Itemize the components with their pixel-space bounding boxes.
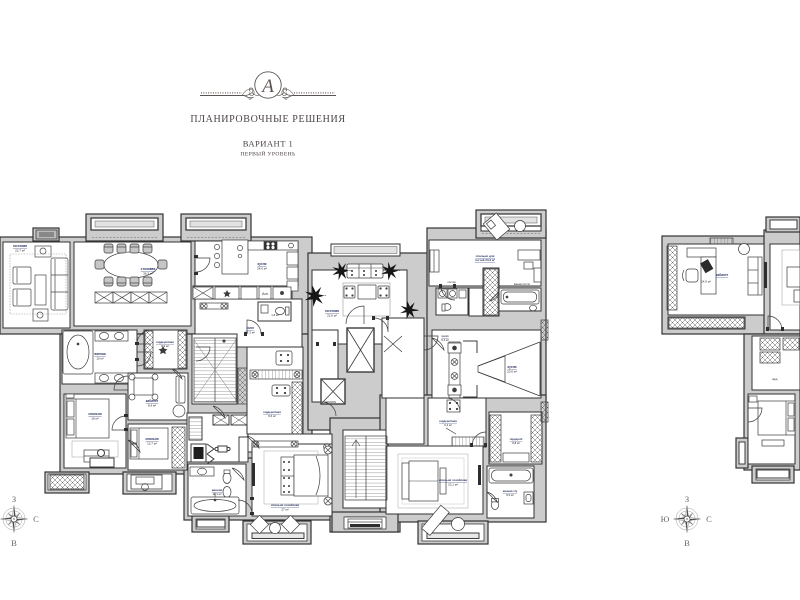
svg-text:В: В	[11, 538, 17, 548]
svg-text:12,7 м²: 12,7 м²	[147, 442, 157, 446]
svg-text:27,3 м²: 27,3 м²	[245, 331, 255, 335]
svg-text:1,8 м²: 1,8 м²	[271, 313, 279, 317]
svg-text:кухня: кухня	[508, 365, 517, 369]
svg-text:23,1 м²: 23,1 м²	[448, 483, 458, 487]
svg-text:гостиная: гостиная	[13, 244, 27, 248]
svg-text:22,7 м²: 22,7 м²	[15, 249, 25, 253]
svg-text:A: A	[260, 76, 274, 97]
svg-text:спальня хозяйская: спальня хозяйская	[271, 503, 300, 507]
svg-text:10 м²: 10 м²	[96, 357, 103, 361]
svg-text:гостей 23,2 м²: гостей 23,2 м²	[475, 258, 495, 262]
svg-text:6,4 м²: 6,4 м²	[444, 423, 452, 427]
svg-text:холл: холл	[246, 326, 254, 330]
svg-text:20,6 м²: 20,6 м²	[507, 370, 517, 374]
svg-text:14,9 м²: 14,9 м²	[701, 280, 711, 284]
svg-text:кабинет: кабинет	[716, 273, 729, 277]
svg-text:ванная: ванная	[94, 352, 105, 356]
svg-text:спальня: спальня	[145, 437, 158, 441]
svg-text:8,4 м²: 8,4 м²	[148, 404, 156, 408]
svg-text:ванная 3,2 м²: ванная 3,2 м²	[514, 282, 530, 286]
svg-text:27 м²: 27 м²	[281, 508, 288, 512]
svg-text:З: З	[12, 494, 16, 504]
svg-text:кухня: кухня	[258, 262, 267, 266]
svg-text:Ю: Ю	[661, 514, 670, 524]
svg-text:спальня: спальня	[88, 412, 101, 416]
svg-text:спальня хозяйская: спальня хозяйская	[439, 478, 468, 482]
svg-text:постир.: постир.	[448, 281, 457, 284]
svg-text:ПЛАНИРОВОЧНЫЕ РЕШЕНИЯ: ПЛАНИРОВОЧНЫЕ РЕШЕНИЯ	[190, 114, 345, 125]
svg-text:В: В	[684, 538, 690, 548]
svg-text:9,6 м²: 9,6 м²	[506, 493, 514, 497]
svg-text:С: С	[33, 514, 39, 524]
svg-text:8,8 м²: 8,8 м²	[512, 441, 520, 445]
svg-text:24,6 м²: 24,6 м²	[257, 267, 267, 271]
svg-text:16 м²: 16 м²	[91, 417, 98, 421]
svg-text:кабинет: кабинет	[146, 399, 159, 403]
svg-text:36,3 м²: 36,3 м²	[143, 272, 153, 276]
svg-text:гостиная: гостиная	[325, 309, 339, 313]
svg-text:гард.: гард.	[772, 377, 779, 381]
svg-text:ВАРИАНТ 1: ВАРИАНТ 1	[243, 139, 294, 149]
svg-text:22,6 м²: 22,6 м²	[327, 314, 337, 318]
svg-text:10,1 м²: 10,1 м²	[212, 492, 221, 496]
svg-text:Am: Am	[262, 291, 269, 296]
svg-text:ПЕРВЫЙ УРОВЕНЬ: ПЕРВЫЙ УРОВЕНЬ	[240, 150, 296, 158]
svg-text:9,4 м²: 9,4 м²	[441, 338, 449, 342]
svg-text:С: С	[706, 514, 712, 524]
svg-text:З: З	[685, 494, 689, 504]
svg-text:9,6 м²: 9,6 м²	[268, 414, 276, 418]
svg-text:5,9 м²: 5,9 м²	[161, 344, 169, 348]
svg-text:столовая: столовая	[141, 267, 156, 271]
